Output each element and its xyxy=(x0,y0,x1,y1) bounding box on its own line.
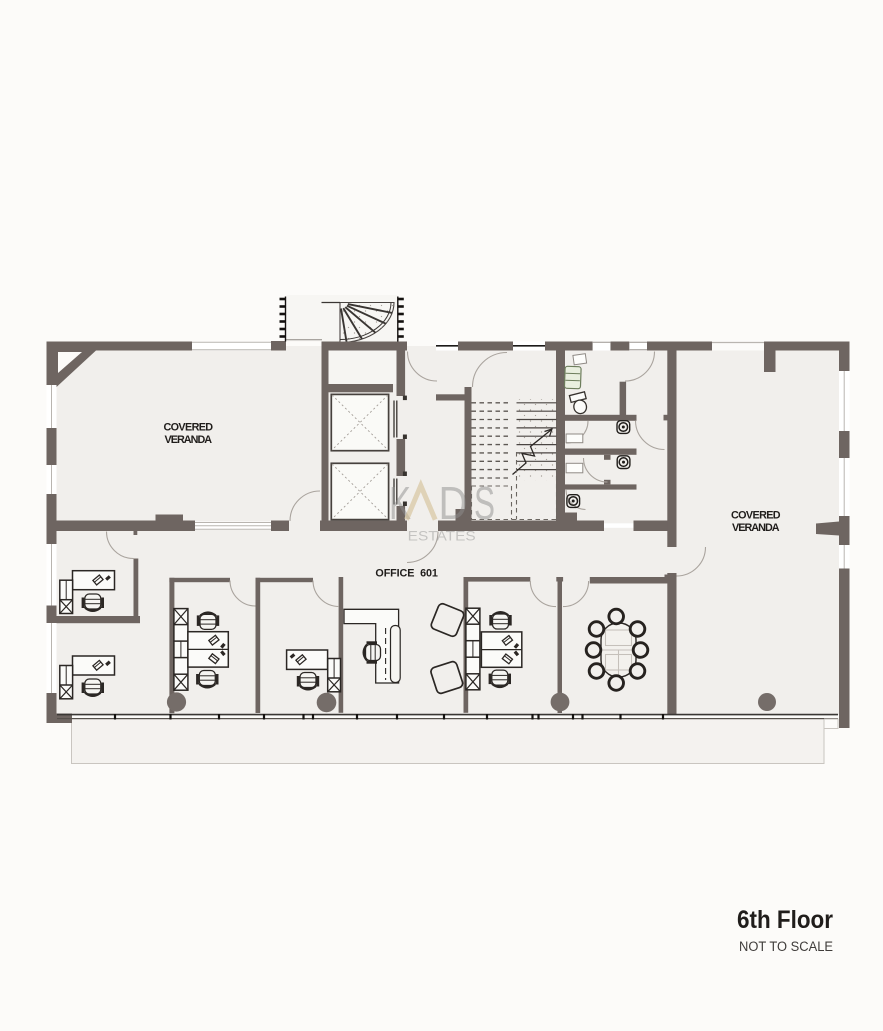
svg-text:OFFICE 601: OFFICE 601 xyxy=(375,568,438,580)
svg-text:COVERED: COVERED xyxy=(164,422,214,434)
svg-text:VERANDA: VERANDA xyxy=(165,434,213,446)
svg-text:NOT TO SCALE: NOT TO SCALE xyxy=(739,939,833,954)
svg-text:D: D xyxy=(439,477,468,529)
svg-text:VERANDA: VERANDA xyxy=(732,522,780,534)
svg-text:K: K xyxy=(389,477,411,529)
svg-text:ESTATES: ESTATES xyxy=(408,528,476,544)
svg-text:COVERED: COVERED xyxy=(731,510,781,522)
svg-text:S: S xyxy=(474,477,495,529)
svg-text:6th Floor: 6th Floor xyxy=(737,906,833,934)
